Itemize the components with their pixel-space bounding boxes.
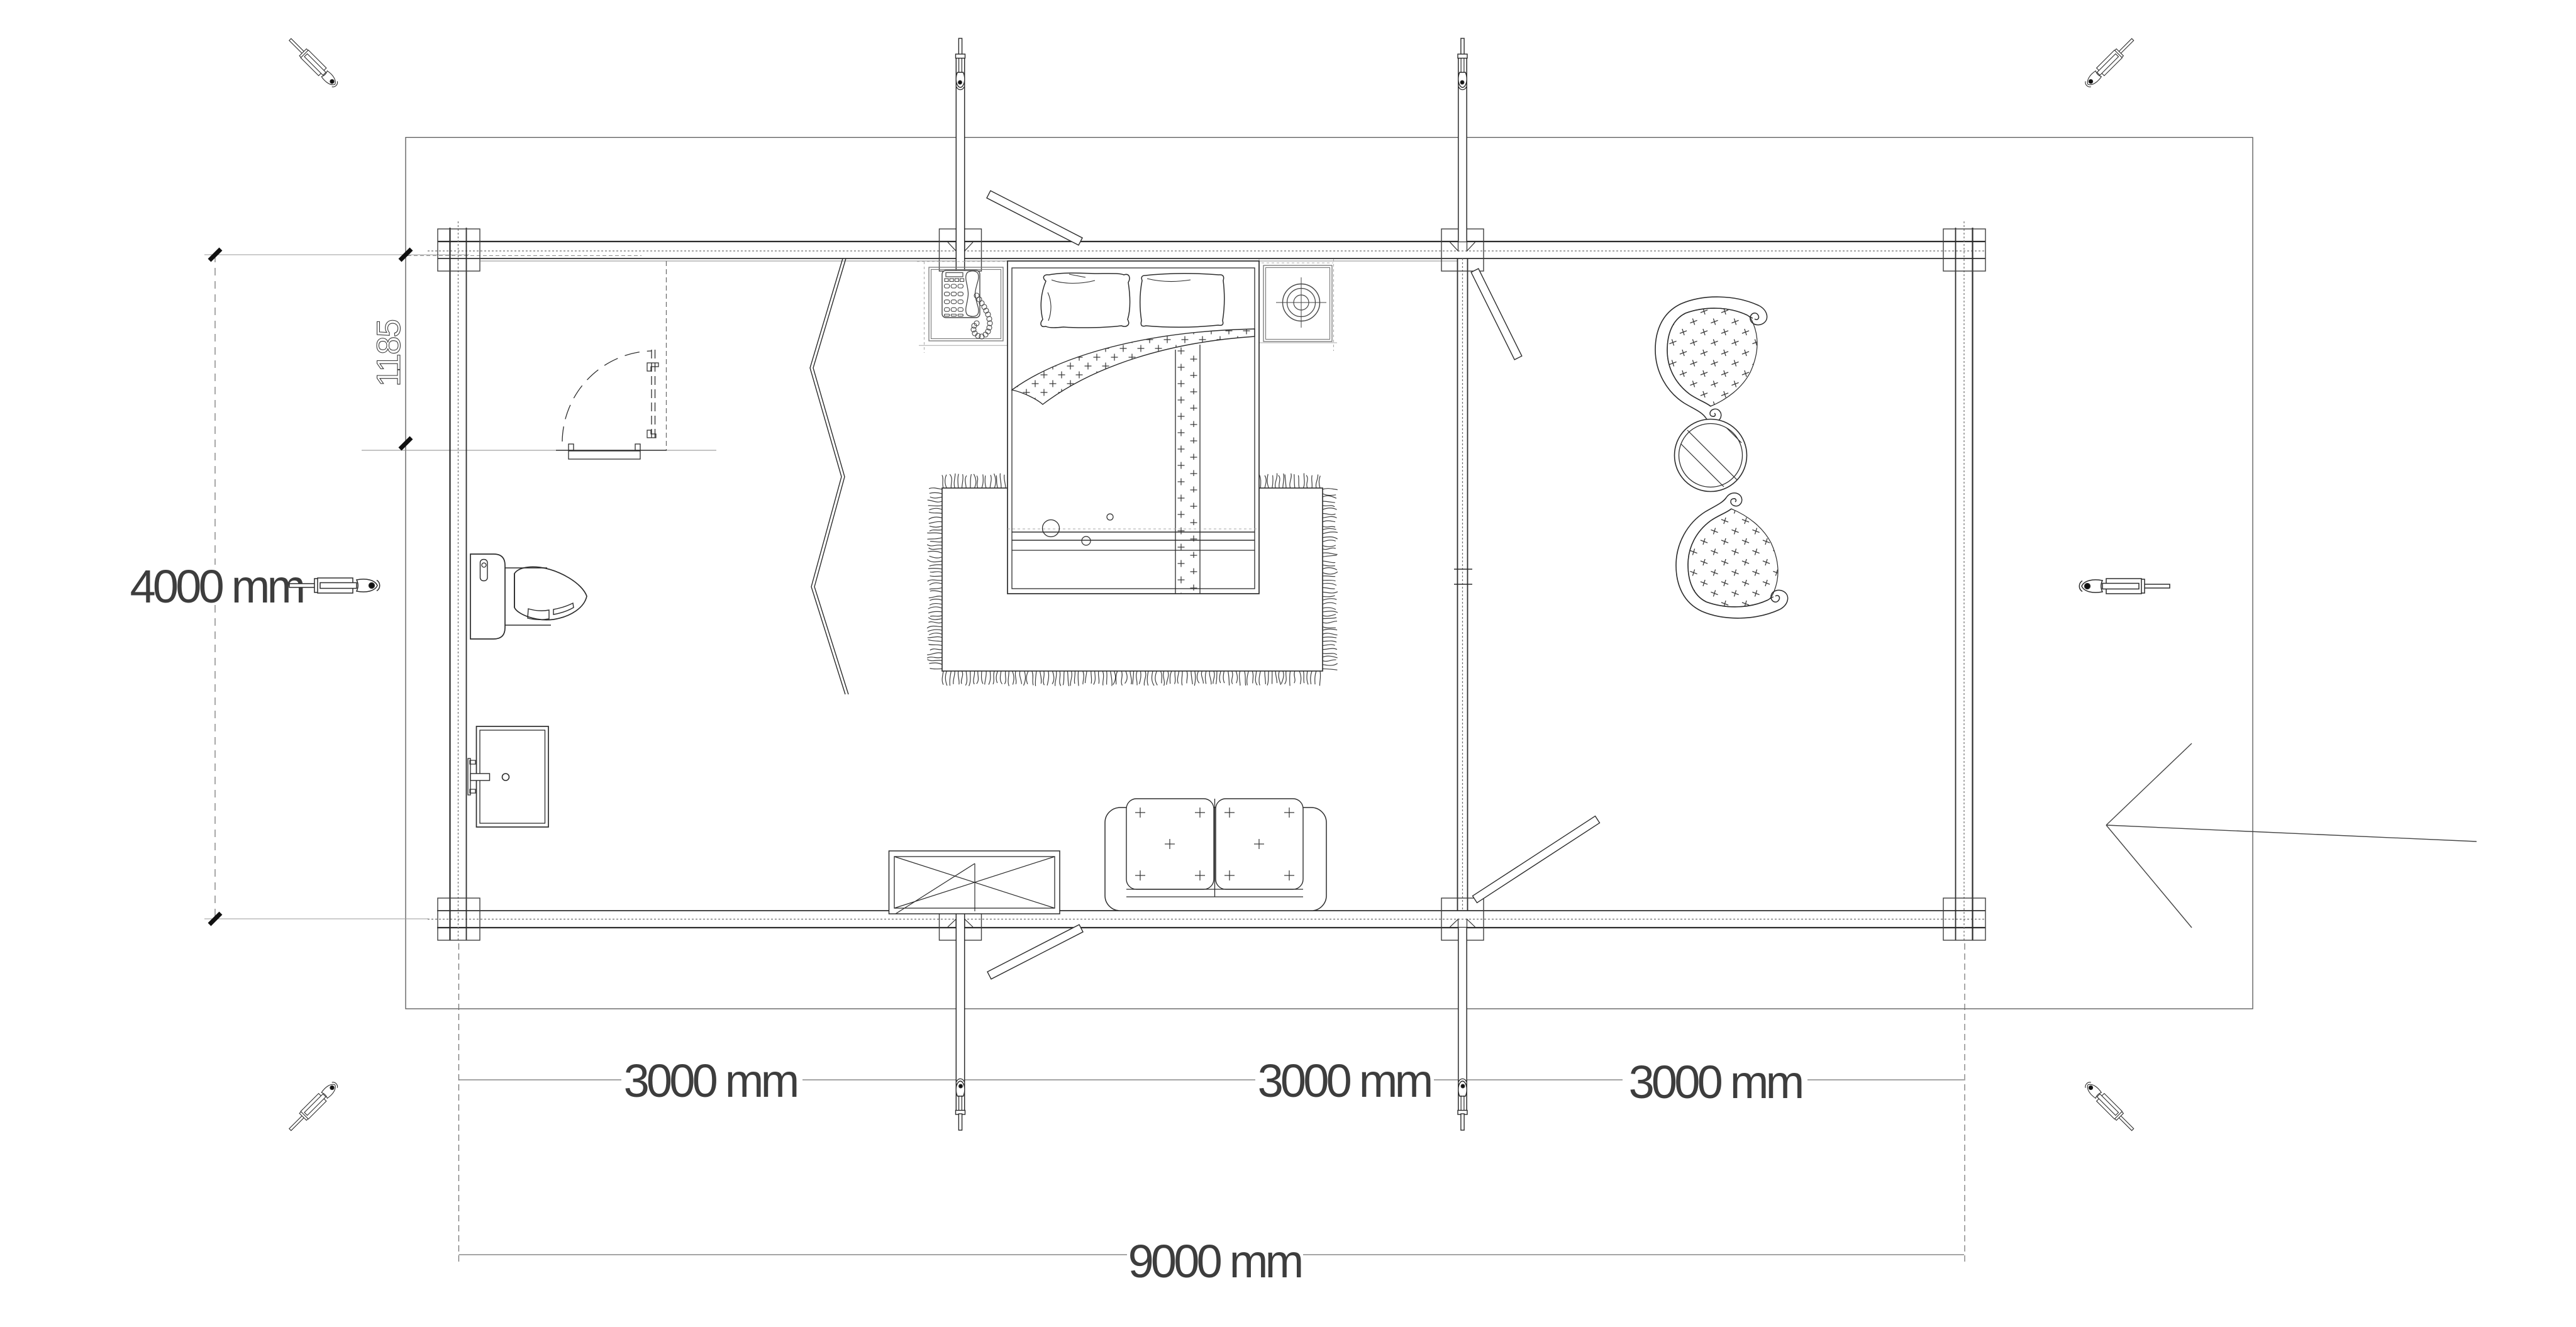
- svg-text:4000 mm: 4000 mm: [130, 560, 303, 613]
- svg-text:3000 mm: 3000 mm: [624, 1055, 797, 1107]
- svg-text:9000 mm: 9000 mm: [1128, 1235, 1301, 1287]
- svg-text:1185: 1185: [370, 319, 408, 386]
- svg-text:3000 mm: 3000 mm: [1258, 1055, 1431, 1107]
- svg-text:3000 mm: 3000 mm: [1629, 1056, 1802, 1108]
